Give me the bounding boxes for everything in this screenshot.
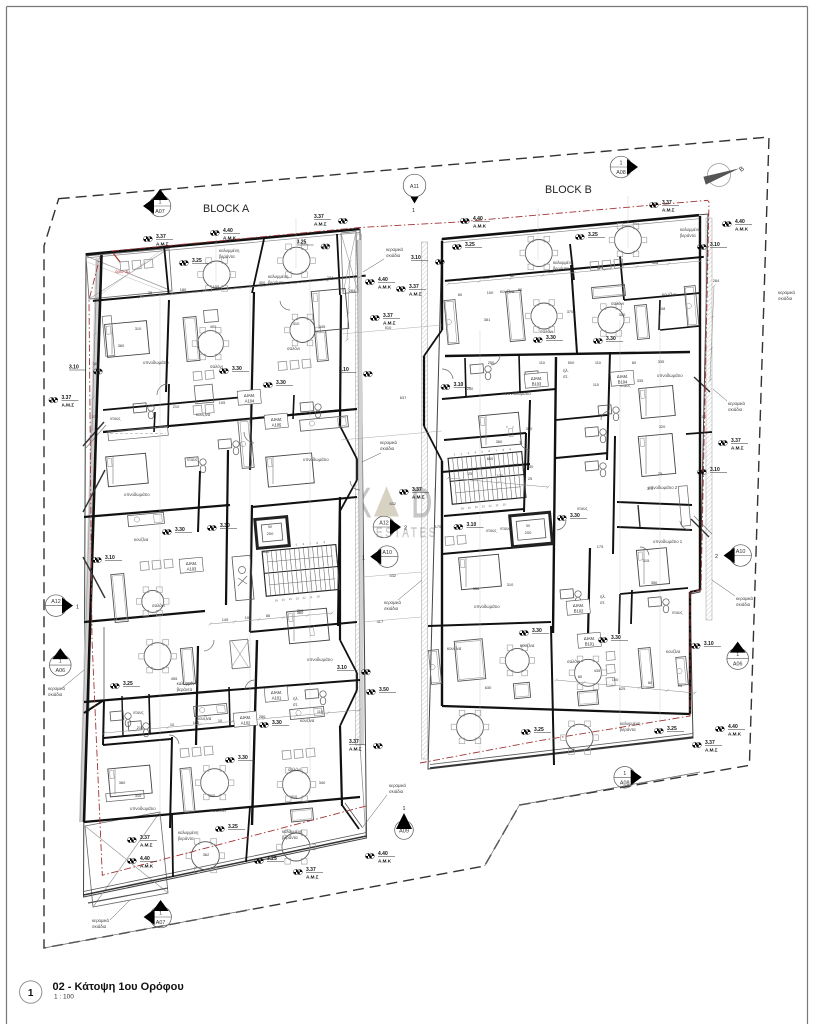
svg-text:3.25: 3.25 — [123, 681, 133, 687]
svg-text:3.10: 3.10 — [337, 665, 347, 671]
svg-text:2: 2 — [715, 554, 718, 560]
svg-text:A104: A104 — [245, 399, 255, 404]
svg-text:650: 650 — [487, 456, 494, 461]
svg-text:3.37: 3.37 — [412, 487, 422, 493]
svg-text:3.37: 3.37 — [306, 867, 316, 873]
svg-text:280: 280 — [259, 714, 266, 719]
svg-text:310: 310 — [297, 608, 304, 613]
svg-text:σκιάδια: σκιάδια — [736, 602, 751, 607]
svg-text:3.25: 3.25 — [667, 726, 677, 732]
svg-text:στ.: στ. — [600, 600, 606, 605]
svg-text:BLOCK A: BLOCK A — [203, 203, 250, 215]
svg-text:καλυμμένη: καλυμμένη — [680, 227, 701, 232]
svg-text:A.M.K: A.M.K — [223, 236, 237, 241]
svg-text:175: 175 — [435, 524, 442, 529]
svg-text:A12: A12 — [379, 521, 389, 527]
svg-text:3.10: 3.10 — [339, 367, 349, 373]
svg-text:3.25: 3.25 — [534, 727, 544, 733]
svg-text:300: 300 — [526, 426, 533, 431]
svg-text:250: 250 — [467, 386, 474, 391]
svg-text:410: 410 — [293, 321, 300, 326]
svg-text:637: 637 — [400, 395, 407, 400]
svg-text:σαλόνι: σαλόνι — [210, 364, 223, 369]
svg-text:335: 335 — [637, 378, 644, 383]
svg-text:3.37: 3.37 — [383, 313, 393, 319]
svg-text:ΔΙΑΜ.: ΔΙΑΜ. — [240, 715, 251, 720]
svg-text:A.M.K: A.M.K — [378, 859, 392, 864]
svg-text:3.10: 3.10 — [69, 365, 79, 371]
svg-text:200: 200 — [267, 531, 274, 536]
svg-text:200: 200 — [525, 530, 532, 535]
svg-text:3.30: 3.30 — [532, 628, 542, 634]
svg-text:315: 315 — [643, 558, 650, 563]
svg-text:3.30: 3.30 — [232, 366, 242, 372]
svg-text:532: 532 — [389, 573, 396, 578]
svg-text:κεραμικά: κεραμικά — [728, 401, 746, 406]
svg-text:σαλόνι: σαλόνι — [288, 767, 301, 772]
svg-text:100: 100 — [487, 290, 494, 295]
svg-text:υπνοδωμάτιο: υπνοδωμάτιο — [130, 806, 156, 811]
svg-text:3.30: 3.30 — [611, 635, 621, 641]
svg-text:A.M.Σ: A.M.Σ — [705, 748, 718, 753]
svg-text:370: 370 — [567, 309, 574, 314]
svg-text:345: 345 — [319, 324, 326, 329]
svg-text:110: 110 — [539, 360, 546, 365]
svg-text:καλυμμένη: καλυμμένη — [268, 274, 289, 279]
svg-text:βεράντα: βεράντα — [268, 280, 284, 285]
svg-text:3.30: 3.30 — [546, 335, 556, 341]
svg-text:ντους: ντους — [110, 416, 121, 421]
svg-text:1: 1 — [620, 161, 623, 167]
svg-text:4.40: 4.40 — [378, 851, 388, 857]
svg-text:κουζίνα: κουζίνα — [500, 289, 515, 294]
svg-text:A105: A105 — [272, 423, 282, 428]
svg-text:4.40: 4.40 — [473, 216, 483, 222]
svg-text:B102: B102 — [574, 609, 584, 614]
svg-text:A.M.K: A.M.K — [735, 227, 749, 232]
svg-text:100: 100 — [612, 677, 619, 682]
svg-text:1: 1 — [159, 200, 162, 206]
svg-text:110: 110 — [595, 360, 602, 365]
svg-text:417: 417 — [377, 619, 384, 624]
svg-text:υπνοδωμάτιο 1: υπνοδωμάτιο 1 — [653, 539, 683, 544]
svg-text:σαλόνι: σαλόνι — [567, 659, 580, 664]
svg-text:130: 130 — [497, 473, 504, 478]
svg-text:234: 234 — [92, 414, 99, 419]
svg-text:A.M.Σ: A.M.Σ — [306, 875, 319, 880]
svg-text:508: 508 — [652, 260, 659, 265]
svg-text:βεράντα: βεράντα — [680, 233, 696, 238]
svg-text:4.40: 4.40 — [223, 228, 233, 234]
svg-text:βεράντα: βεράντα — [620, 727, 636, 732]
svg-text:A10: A10 — [736, 549, 746, 555]
svg-text:130: 130 — [527, 464, 534, 469]
svg-text:ΔΙΑΜ.: ΔΙΑΜ. — [271, 690, 282, 695]
svg-text:A.M.K: A.M.K — [140, 864, 154, 869]
svg-text:310: 310 — [135, 793, 142, 798]
svg-text:ΔΙΑΜ.: ΔΙΑΜ. — [584, 636, 595, 641]
svg-text:κεραμικά: κεραμικά — [380, 440, 398, 445]
svg-text:300: 300 — [619, 312, 626, 317]
svg-text:3.30: 3.30 — [175, 527, 185, 533]
svg-text:κουζίνα: κουζίνα — [134, 537, 149, 542]
svg-text:3.37: 3.37 — [349, 739, 359, 745]
svg-text:A07: A07 — [156, 920, 166, 926]
svg-text:360: 360 — [118, 343, 125, 348]
svg-text:1: 1 — [159, 911, 162, 917]
svg-text:σαλόνι: σαλόνι — [213, 808, 226, 813]
svg-text:υπνοδωμάτιο 2: υπνοδωμάτιο 2 — [648, 485, 678, 490]
svg-text:3.25: 3.25 — [297, 240, 307, 246]
svg-text:3.30: 3.30 — [272, 720, 282, 726]
svg-text:175: 175 — [597, 544, 604, 549]
svg-text:625: 625 — [619, 686, 626, 691]
svg-text:κουζίνα: κουζίνα — [666, 649, 681, 654]
svg-text:υπνοδωμάτιο: υπνοδωμάτιο — [505, 391, 531, 396]
svg-text:ΔΙΑΜ.: ΔΙΑΜ. — [244, 393, 255, 398]
svg-text:A.M.K: A.M.K — [473, 224, 487, 229]
svg-text:A11: A11 — [410, 184, 419, 190]
svg-text:500: 500 — [568, 360, 575, 365]
svg-text:3.37: 3.37 — [662, 200, 672, 206]
svg-text:σκιάδια: σκιάδια — [380, 446, 395, 451]
svg-text:105: 105 — [245, 615, 252, 620]
svg-text:110: 110 — [317, 709, 324, 714]
svg-text:3.25: 3.25 — [465, 242, 475, 248]
svg-text:κουζίνα: κουζίνα — [197, 716, 212, 721]
svg-text:650: 650 — [263, 549, 270, 554]
svg-text:3.10: 3.10 — [454, 382, 464, 388]
svg-text:3.30: 3.30 — [220, 523, 230, 529]
svg-text:320: 320 — [659, 424, 666, 429]
svg-text:1: 1 — [362, 556, 365, 562]
svg-text:1: 1 — [736, 652, 739, 658]
svg-text:508: 508 — [659, 306, 666, 311]
svg-text:3.25: 3.25 — [588, 232, 598, 238]
svg-text:ντους: ντους — [500, 526, 511, 531]
svg-text:ΔΙΑΜ.: ΔΙΑΜ. — [617, 374, 628, 379]
svg-text:βεράντα: βεράντα — [178, 836, 194, 841]
svg-text:κεραμικά: κεραμικά — [736, 596, 754, 601]
svg-text:υπνοδωμάτιο: υπνοδωμάτιο — [143, 360, 169, 365]
svg-text:3.30: 3.30 — [276, 380, 286, 386]
svg-text:532: 532 — [389, 501, 396, 506]
svg-text:360: 360 — [496, 439, 503, 444]
svg-text:340: 340 — [319, 780, 326, 785]
svg-text:3.25: 3.25 — [228, 824, 238, 830]
svg-text:400: 400 — [209, 793, 216, 798]
svg-text:σκιάδια: σκιάδια — [728, 407, 743, 412]
svg-text:κουζίνα: κουζίνα — [447, 646, 462, 651]
svg-text:1: 1 — [412, 208, 415, 214]
svg-text:4.40: 4.40 — [378, 277, 388, 283]
svg-text:410: 410 — [291, 794, 298, 799]
svg-text:στ.: στ. — [563, 374, 569, 379]
svg-text:3.37: 3.37 — [731, 438, 741, 444]
svg-text:3.37: 3.37 — [140, 835, 150, 841]
svg-text:300: 300 — [93, 361, 100, 366]
svg-text:510: 510 — [385, 325, 392, 330]
svg-text:βεράντα: βεράντα — [177, 687, 193, 692]
svg-text:362: 362 — [203, 852, 210, 857]
svg-text:κεραμικά: κεραμικά — [778, 290, 796, 295]
svg-text:A.M.Σ: A.M.Σ — [383, 321, 396, 326]
svg-text:καλυμμένη: καλυμμένη — [282, 829, 303, 834]
svg-text:B101: B101 — [585, 642, 595, 647]
svg-text:ηλ.: ηλ. — [600, 594, 606, 599]
svg-text:B104: B104 — [618, 380, 628, 385]
svg-text:ΔΙΑΜ.: ΔΙΑΜ. — [271, 417, 282, 422]
svg-text:250: 250 — [488, 360, 495, 365]
svg-text:υπνοδωμάτιο: υπνοδωμάτιο — [303, 457, 329, 462]
svg-text:σκιάδια: σκιάδια — [384, 606, 399, 611]
svg-text:ηλ.: ηλ. — [563, 368, 569, 373]
svg-text:1: 1 — [76, 605, 79, 611]
svg-text:155: 155 — [213, 284, 220, 289]
svg-text:υπνοδωμάτιο: υπνοδωμάτιο — [124, 492, 150, 497]
svg-text:3.37: 3.37 — [62, 395, 72, 401]
svg-text:25: 25 — [678, 683, 682, 688]
svg-text:310: 310 — [135, 326, 142, 331]
svg-text:4.40: 4.40 — [140, 856, 150, 862]
svg-text:ντους: ντους — [486, 528, 497, 533]
svg-text:310: 310 — [507, 582, 514, 587]
svg-text:4.40: 4.40 — [728, 724, 738, 730]
svg-text:A.M.Σ: A.M.Σ — [314, 222, 327, 227]
svg-text:BLOCK B: BLOCK B — [545, 184, 592, 196]
svg-text:A.M.Σ: A.M.Σ — [662, 208, 675, 213]
svg-text:A.M.Σ: A.M.Σ — [349, 747, 362, 752]
svg-text:85: 85 — [266, 613, 270, 618]
svg-text:210: 210 — [137, 725, 144, 730]
svg-text:A101: A101 — [272, 696, 282, 701]
svg-text:A06: A06 — [733, 662, 743, 668]
svg-text:1: 1 — [403, 806, 406, 812]
svg-text:435: 435 — [594, 668, 601, 673]
svg-text:1: 1 — [59, 659, 62, 665]
svg-text:1: 1 — [623, 771, 626, 777]
svg-text:κεραμικά: κεραμικά — [384, 600, 402, 605]
svg-text:βεράντα: βεράντα — [282, 835, 298, 840]
svg-text:κεραμικά: κεραμικά — [92, 918, 110, 923]
svg-text:καλυμμένη: καλυμμένη — [178, 830, 199, 835]
svg-text:κεραμικά: κεραμικά — [386, 247, 404, 252]
svg-text:1 : 100: 1 : 100 — [54, 994, 74, 1001]
svg-text:623: 623 — [597, 265, 604, 270]
svg-text:100: 100 — [700, 414, 707, 419]
svg-text:335: 335 — [658, 359, 665, 364]
svg-text:A.M.Σ: A.M.Σ — [62, 403, 75, 408]
svg-text:A09: A09 — [399, 829, 409, 835]
svg-text:καλυμμένη: καλυμμένη — [177, 681, 198, 686]
svg-text:3.10: 3.10 — [105, 555, 115, 561]
svg-text:350: 350 — [651, 580, 658, 585]
svg-text:3.30: 3.30 — [238, 755, 248, 761]
svg-text:σαλόνι: σαλόνι — [287, 346, 300, 351]
svg-text:3.25: 3.25 — [267, 856, 277, 862]
svg-text:κουζίνα: κουζίνα — [196, 412, 211, 417]
svg-text:145: 145 — [222, 617, 229, 622]
svg-text:κεραμικά: κεραμικά — [48, 686, 66, 691]
svg-text:A10: A10 — [382, 550, 392, 556]
svg-text:A.M.Σ: A.M.Σ — [156, 242, 169, 247]
svg-text:A08: A08 — [620, 780, 630, 786]
svg-text:3.50: 3.50 — [379, 687, 389, 693]
svg-text:4.40: 4.40 — [735, 219, 745, 225]
svg-text:βεράντα: βεράντα — [219, 254, 235, 259]
svg-text:ντους: ντους — [577, 506, 588, 511]
svg-text:στ.: στ. — [293, 702, 299, 707]
svg-text:W: W — [526, 523, 530, 528]
svg-text:κεραμικά: κεραμικά — [389, 783, 407, 788]
svg-text:A06: A06 — [56, 668, 66, 674]
svg-text:σκιάδια: σκιάδια — [778, 296, 793, 301]
svg-text:ΔΙΑΜ.: ΔΙΑΜ. — [573, 603, 584, 608]
svg-text:υπνοδωμάτιο: υπνοδωμάτιο — [657, 373, 683, 378]
svg-text:25: 25 — [528, 476, 532, 481]
svg-text:284: 284 — [349, 288, 356, 293]
svg-text:A07: A07 — [155, 209, 165, 215]
svg-text:1: 1 — [28, 988, 34, 999]
svg-text:A.M.K: A.M.K — [728, 732, 742, 737]
svg-text:3.10: 3.10 — [710, 242, 720, 248]
svg-text:02 - Κάτοψη 1ου Ορόφου: 02 - Κάτοψη 1ου Ορόφου — [53, 981, 184, 993]
svg-text:A102: A102 — [241, 721, 251, 726]
svg-text:3.37: 3.37 — [314, 214, 324, 220]
svg-text:336: 336 — [473, 586, 480, 591]
svg-text:κουζίνα: κουζίνα — [300, 718, 315, 723]
svg-text:284: 284 — [713, 278, 720, 283]
svg-text:ντους: ντους — [187, 457, 198, 462]
svg-text:3.10: 3.10 — [704, 641, 714, 647]
svg-text:σαλόνι: σαλόνι — [611, 301, 624, 306]
svg-text:κουζίνα: κουζίνα — [662, 292, 677, 297]
svg-text:284: 284 — [327, 275, 334, 280]
svg-text:3.37: 3.37 — [156, 234, 166, 240]
svg-text:3.30: 3.30 — [570, 513, 580, 519]
svg-text:καλυμμένη: καλυμμένη — [553, 260, 574, 265]
svg-text:A.M.Σ: A.M.Σ — [412, 495, 425, 500]
svg-text:2: 2 — [404, 526, 407, 532]
svg-text:ντους: ντους — [133, 710, 144, 715]
svg-text:25: 25 — [148, 290, 152, 295]
svg-text:B103: B103 — [532, 382, 542, 387]
svg-text:110: 110 — [593, 382, 600, 387]
svg-text:3.25: 3.25 — [192, 258, 202, 264]
svg-text:400: 400 — [259, 280, 266, 285]
svg-text:όριο 3μ: όριο 3μ — [115, 268, 130, 274]
svg-text:105: 105 — [219, 400, 226, 405]
svg-text:A.M.Σ: A.M.Σ — [731, 446, 744, 451]
svg-text:υπνοδωμάτιο: υπνοδωμάτιο — [307, 657, 333, 662]
svg-text:A.M.K: A.M.K — [378, 285, 392, 290]
svg-text:360: 360 — [119, 780, 126, 785]
svg-text:630: 630 — [485, 685, 492, 690]
svg-text:210: 210 — [173, 404, 180, 409]
svg-text:σκιάδια: σκιάδια — [48, 692, 63, 697]
svg-text:ντους: ντους — [672, 610, 683, 615]
svg-text:ΔΙΑΜ.: ΔΙΑΜ. — [531, 376, 542, 381]
svg-text:υπνοδωμάτιο: υπνοδωμάτιο — [474, 604, 500, 609]
svg-text:A103: A103 — [187, 567, 197, 572]
svg-text:400: 400 — [210, 324, 217, 329]
svg-text:3.10: 3.10 — [467, 522, 477, 528]
svg-text:σκιάδια: σκιάδια — [389, 789, 404, 794]
svg-text:381: 381 — [484, 317, 491, 322]
svg-text:25: 25 — [468, 471, 472, 476]
svg-text:κουζίνα: κουζίνα — [520, 643, 535, 648]
svg-text:σαλόνι: σαλόνι — [152, 603, 165, 608]
svg-text:180: 180 — [180, 287, 187, 292]
svg-text:A.M.Σ: A.M.Σ — [409, 292, 422, 297]
svg-text:σαλόνι: σαλόνι — [540, 329, 553, 334]
svg-text:25: 25 — [658, 471, 662, 476]
svg-text:3.30: 3.30 — [606, 336, 616, 342]
svg-text:καλυμμένη: καλυμμένη — [620, 721, 641, 726]
svg-text:3.10: 3.10 — [411, 255, 421, 261]
svg-text:καλυμμένη: καλυμμένη — [219, 248, 240, 253]
svg-text:σκιάδια: σκιάδια — [386, 253, 401, 258]
svg-text:A08: A08 — [616, 170, 626, 176]
svg-text:W: W — [268, 524, 272, 529]
svg-text:3.37: 3.37 — [705, 740, 715, 746]
svg-text:A12: A12 — [51, 599, 61, 605]
svg-text:ηλ.: ηλ. — [293, 696, 299, 701]
svg-text:3.37: 3.37 — [409, 284, 419, 290]
svg-text:ΔΙΑΜ.: ΔΙΑΜ. — [186, 561, 197, 566]
svg-text:3.10: 3.10 — [710, 467, 720, 473]
svg-text:A.M.Σ: A.M.Σ — [140, 843, 153, 848]
svg-text:σκιάδια: σκιάδια — [92, 924, 107, 929]
svg-text:βεράντα: βεράντα — [553, 266, 569, 271]
svg-text:100: 100 — [483, 275, 490, 280]
